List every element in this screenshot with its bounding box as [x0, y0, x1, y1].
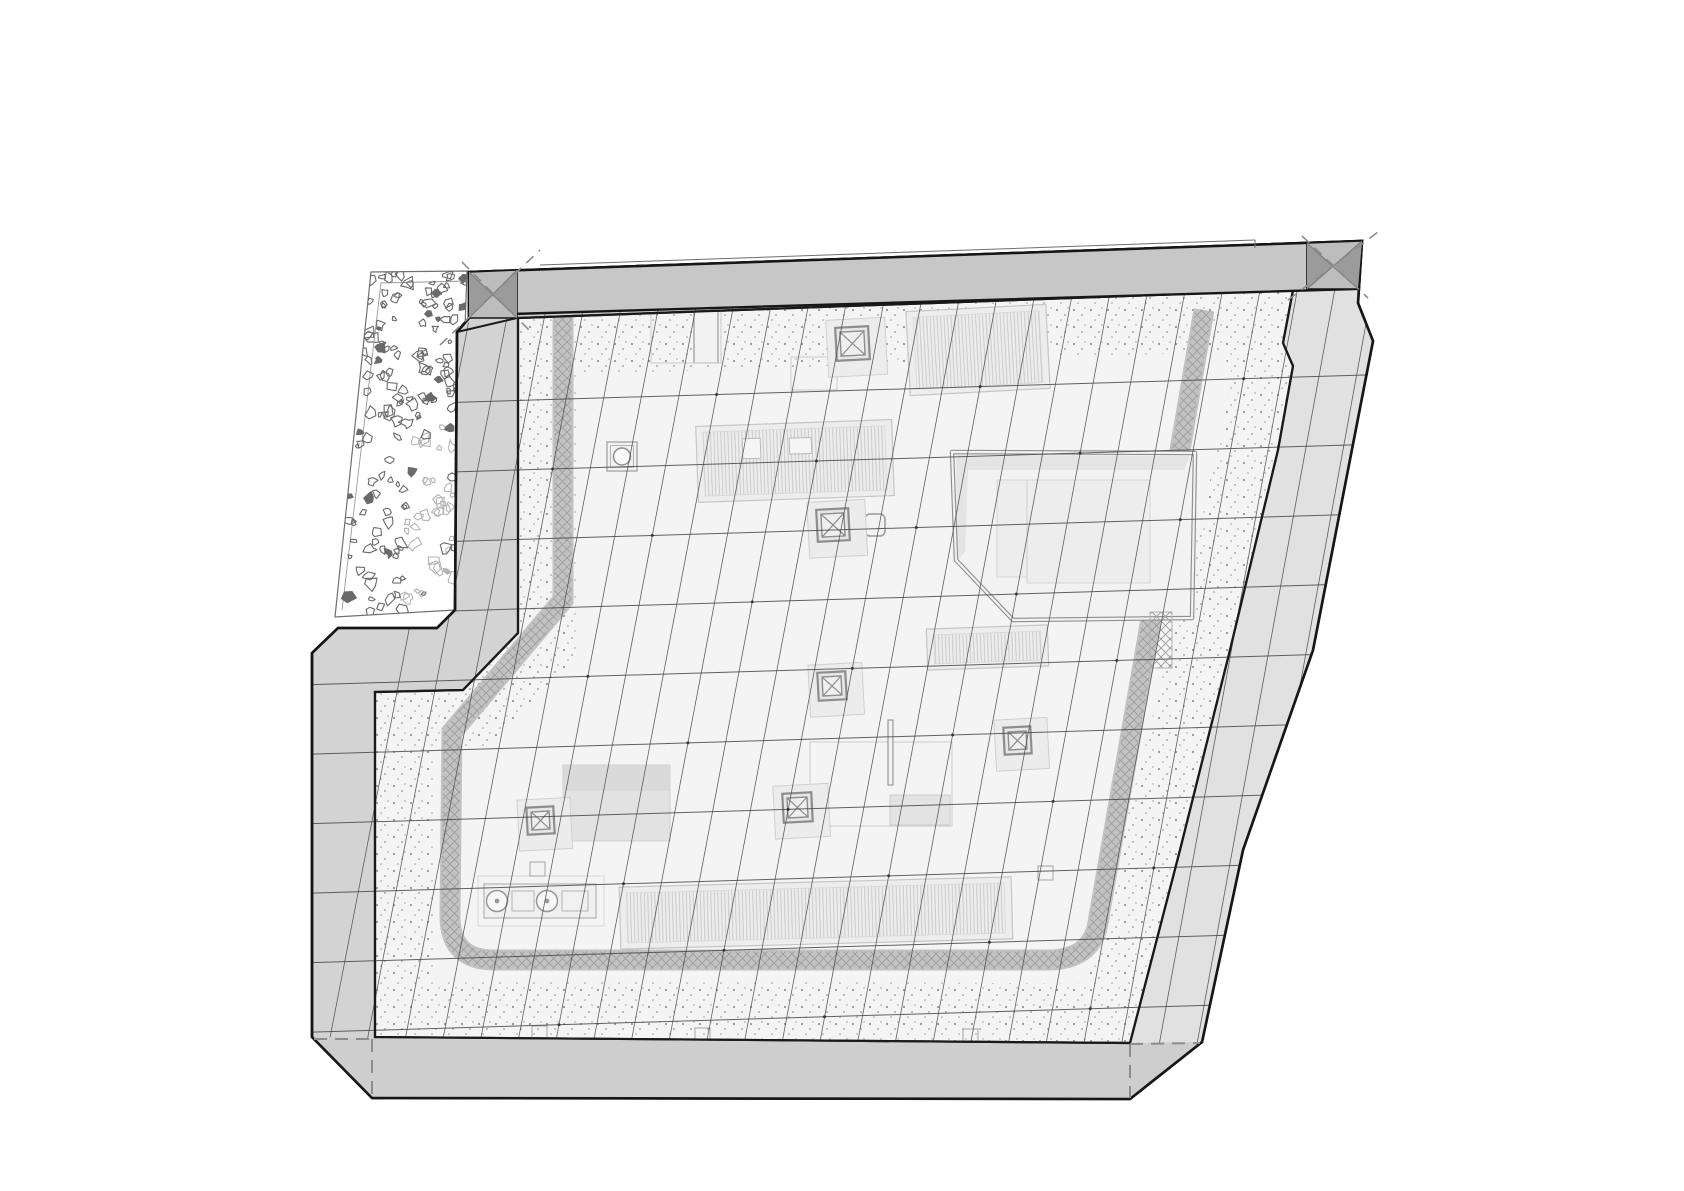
roof-hatch-top: [826, 317, 888, 377]
vent-rounded: [865, 514, 885, 536]
antenna-rect: [888, 720, 893, 785]
louver-slats: [626, 883, 1005, 943]
roof-plan-drawing: [0, 0, 1684, 1191]
courtyard-inner-rect: [1027, 480, 1150, 583]
vent-stack: [694, 305, 718, 363]
grid-node-dot: [851, 667, 854, 670]
louver-slats: [913, 311, 1043, 389]
grid-node-dot: [1089, 1007, 1092, 1010]
grid-node-dot: [1052, 800, 1055, 803]
roof-hatch-center: [808, 662, 865, 717]
skylight-louver-top: [906, 304, 1050, 395]
roof-hatch-right: [994, 717, 1050, 771]
plain-rect: [694, 305, 718, 363]
grid-node-dot: [715, 393, 718, 396]
grid-node-dot: [1179, 518, 1182, 521]
mech-fan-hub: [495, 899, 500, 904]
grid-node-dot: [1115, 659, 1118, 662]
grid-node-dot: [887, 874, 890, 877]
grid-node-dot: [1242, 377, 1245, 380]
plain-rect: [888, 720, 893, 785]
vent-circle-glyph: [614, 448, 631, 465]
grid-node-dot: [823, 1015, 826, 1018]
grid-node-dot: [1015, 593, 1018, 596]
louver-slats: [934, 631, 1042, 664]
skylight-louver-bottom: [619, 877, 1012, 949]
louver-subunit: [789, 437, 812, 454]
grid-node-dot: [951, 733, 954, 736]
grid-node-dot: [815, 460, 818, 463]
grid-node-dot: [586, 675, 589, 678]
grid-node-dot: [988, 941, 991, 944]
grid-node-dot: [686, 741, 689, 744]
roof-plan-page: [0, 0, 1684, 1191]
mech-unit: [478, 876, 604, 926]
grid-node-dot: [1152, 866, 1155, 869]
block-top: [563, 765, 670, 791]
grid-node-dot: [751, 600, 754, 603]
gray-block: [563, 765, 670, 841]
rounded-vent: [865, 514, 885, 536]
courtyard-shadow: [956, 455, 1190, 470]
grid-node-dot: [787, 808, 790, 811]
grid-node-dot: [979, 385, 982, 388]
louver-slats: [703, 426, 887, 496]
grid-node-dot: [915, 526, 918, 529]
grid-node-dot: [622, 882, 625, 885]
grid-node-dot: [723, 949, 726, 952]
bottom-parapet-band: [312, 1037, 1202, 1099]
grid-node-dot: [551, 467, 554, 470]
grid-node-dot: [651, 534, 654, 537]
grid-node-dot: [558, 1023, 561, 1026]
grid-node-dot: [1079, 452, 1082, 455]
skylight-louver-left: [696, 420, 895, 503]
